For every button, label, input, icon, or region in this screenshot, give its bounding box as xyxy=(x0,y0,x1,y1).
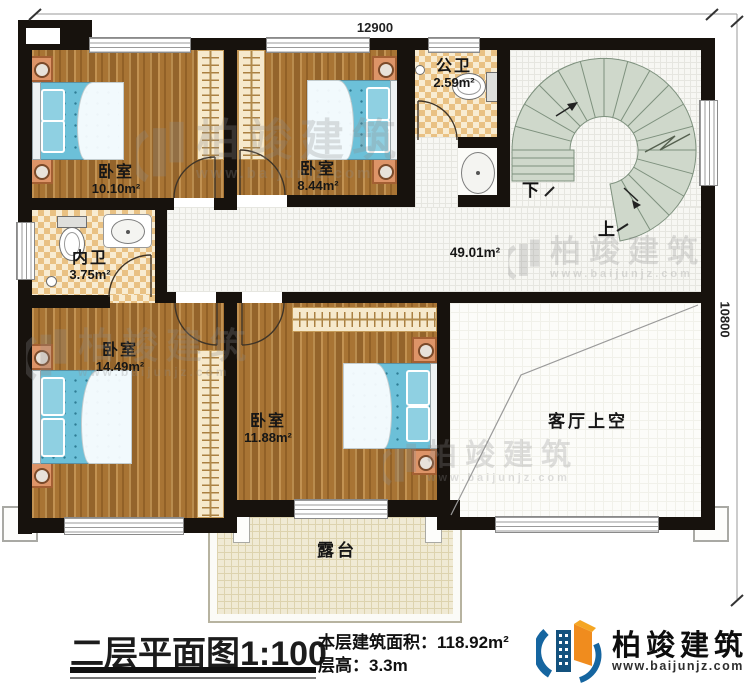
floor-plan-canvas: 12900 10800 xyxy=(0,0,750,687)
pillow xyxy=(41,377,65,416)
label-bedroom3: 卧室 14.49m² xyxy=(70,342,170,374)
wall-bedroom1-2 xyxy=(224,38,237,207)
nightstand xyxy=(372,158,397,184)
sliding-door-terrace xyxy=(294,499,388,519)
wall-corridor-bottom-a xyxy=(155,292,176,303)
pillow xyxy=(366,87,390,121)
duvet xyxy=(307,80,354,160)
window-bedroom3 xyxy=(64,517,184,535)
label-ensuite-bath: 内卫 3.75m² xyxy=(44,250,136,282)
label-public-bath: 公卫 2.59m² xyxy=(408,58,500,90)
wardrobe-bedroom1 xyxy=(197,50,224,160)
label-bedroom4: 卧室 11.88m² xyxy=(218,413,318,445)
wall-bedroom1-bottom xyxy=(18,198,174,210)
window-publicbath xyxy=(428,37,480,53)
title-underline-thick xyxy=(70,667,316,673)
wall-bedroom1-bottom2 xyxy=(214,198,237,210)
floor-height-line: 层高：3.3m xyxy=(318,655,509,678)
title-underline-thin xyxy=(70,677,316,679)
bed-bedroom1 xyxy=(32,82,124,160)
window-livingroom xyxy=(495,516,659,533)
headboard xyxy=(32,82,41,160)
label-stair-up: 上 xyxy=(598,215,615,240)
pillow xyxy=(406,370,430,406)
nightstand xyxy=(412,337,437,363)
wall-corridor-bottom-b xyxy=(216,292,242,303)
wall-bedroom2-bottom xyxy=(287,195,415,207)
duvet xyxy=(81,370,132,464)
window-stair xyxy=(699,100,718,186)
sink-niche xyxy=(461,152,495,194)
duvet xyxy=(77,82,124,160)
wall-ensuite-bottom xyxy=(18,295,110,308)
label-hall-area: 49.01m² xyxy=(425,245,525,260)
label-bedroom1: 卧室 10.10m² xyxy=(66,164,166,196)
window-bedroom2 xyxy=(266,37,370,53)
pillow xyxy=(366,119,390,153)
plan-info: 本层建筑面积：118.92m² 层高：3.3m xyxy=(318,632,509,678)
label-living-void: 客厅上空 xyxy=(528,407,648,432)
dimension-right: 10800 xyxy=(718,290,733,350)
chimney-hole xyxy=(26,28,60,44)
window-ensuite xyxy=(16,222,35,280)
nightstand xyxy=(372,56,397,82)
logo-url: www.baijunjz.com xyxy=(612,659,744,673)
floor-area-line: 本层建筑面积：118.92m² xyxy=(318,632,509,655)
window-bedroom1 xyxy=(89,37,191,53)
wall-niche-bottom xyxy=(458,195,510,207)
wall-corridor-bottom-c xyxy=(282,292,715,303)
bath-entry-floor xyxy=(415,137,458,207)
headboard xyxy=(32,370,41,464)
logo-brand: 柏竣建筑 xyxy=(612,622,748,664)
wall-void-left xyxy=(437,303,450,530)
pillow xyxy=(41,418,65,457)
pillow xyxy=(41,89,65,122)
pillow xyxy=(41,120,65,153)
wardrobe-bedroom4 xyxy=(292,307,437,332)
nightstand xyxy=(412,449,437,475)
logo-building-icon xyxy=(536,616,608,686)
label-stair-down: 下 xyxy=(522,176,539,201)
bed-bedroom2 xyxy=(307,80,399,160)
wall-ensuite-right xyxy=(155,207,167,303)
duvet xyxy=(343,363,392,449)
wall-left xyxy=(18,38,32,534)
pillow xyxy=(406,406,430,442)
wardrobe-bedroom2 xyxy=(238,50,265,160)
bed-bedroom3 xyxy=(32,370,132,464)
label-bedroom2: 卧室 8.44m² xyxy=(268,161,368,193)
sink-ensuite xyxy=(103,214,152,248)
dimension-top: 12900 xyxy=(340,20,410,35)
bed-bedroom4 xyxy=(343,363,439,449)
label-terrace: 露台 xyxy=(297,536,377,561)
